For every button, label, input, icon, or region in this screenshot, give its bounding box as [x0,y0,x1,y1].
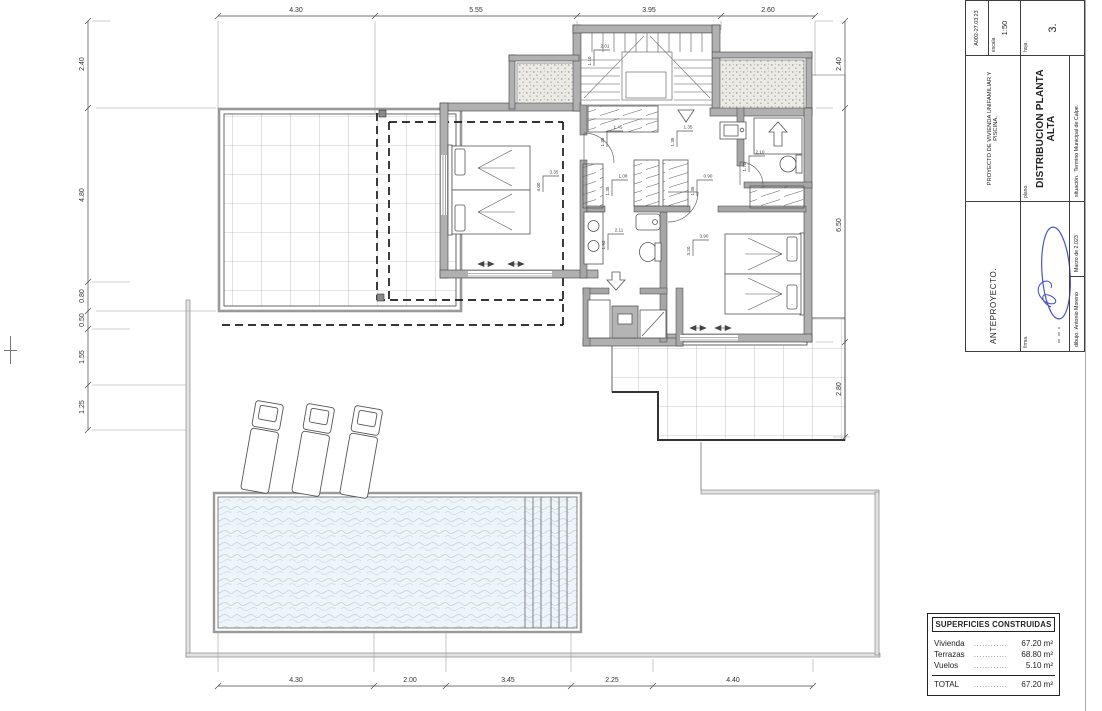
sun-lounger [292,403,335,496]
project-name: PROYECTO DE VIVIENDA UNIFAMILIAR Y PISCI… [966,55,1020,201]
project-type-label: ANTEPROYECTO. [966,201,1020,351]
location-value: Termino Municipal de Calpe. [1074,105,1080,172]
sun-lounger [241,400,284,493]
toilet-tank [796,155,802,173]
author-cell: dibujo. Antonio Moreno [1070,277,1084,351]
svg-text:2.25: 2.25 [605,677,619,684]
title-block: ANTEPROYECTO. PROYECTO DE VIVIENDA UNIFA… [965,0,1085,352]
room-dimension-label: 0.90 1.35 [690,174,713,197]
svg-text:2.60: 2.60 [761,7,775,14]
author-label: dibujo. [1074,331,1080,347]
svg-text:1.70: 1.70 [742,162,747,171]
sun-loungers [241,400,383,498]
svg-text:4.40: 4.40 [726,677,740,684]
svg-text:3.90: 3.90 [700,234,709,239]
plan-title-cell: plano. DISTRIBUCION PLANTA ALTA situació… [1021,55,1084,201]
svg-text:6.50: 6.50 [836,218,843,232]
svg-text:1.35: 1.35 [684,125,693,130]
landing-closets [588,300,666,338]
table-row: Vivienda ............ 67.20 m² [934,639,1053,648]
bed-right [725,233,804,315]
pillow [787,285,797,309]
areas-table: SUPERFICIES CONSTRUIDAS Vivienda .......… [927,613,1060,696]
floor-plan-canvas: 4.30 5.55 3.95 2.60 4.30 2.00 3.45 2.25 … [0,0,1102,711]
svg-text:1.08: 1.08 [619,174,628,179]
location-cell: situación. Termino Municipal de Calpe. [1069,56,1084,201]
location-label: situación. [1074,175,1080,197]
svg-text:0.80: 0.80 [79,289,86,303]
svg-text:2.10: 2.10 [756,150,765,155]
svg-text:1.35: 1.35 [600,137,605,146]
table-total-row: TOTAL ............ 67.20 m² [932,675,1055,689]
svg-text:4.00: 4.00 [536,182,541,191]
drawing-sheet: 4.30 5.55 3.95 2.60 4.30 2.00 3.45 2.25 … [0,0,1102,711]
svg-text:2.40: 2.40 [79,57,86,71]
hall-wardrobe [588,106,658,132]
svg-text:1.45: 1.45 [614,125,623,130]
svg-text:1.35: 1.35 [605,186,610,195]
page-margin-mark [4,350,17,351]
svg-text:1.35: 1.35 [670,137,675,146]
pillow [455,205,465,231]
pillow [787,237,797,261]
table-row: Vuelos ............ 5.10 m² [934,661,1053,670]
sheet-number-cell: hoja. 3. [1021,1,1084,55]
svg-text:1.10: 1.10 [587,56,592,65]
room-dimension-label: 1.35 1.35 [670,125,693,148]
svg-text:3.20: 3.20 [686,246,691,255]
svg-text:0.90: 0.90 [704,174,713,179]
room-dimension-label: 1.08 1.35 [605,174,628,197]
svg-text:2.11: 2.11 [615,228,624,233]
svg-text:4.30: 4.30 [289,677,303,684]
date-value: Marzo de 2.023 [1074,235,1080,272]
sink-bowl [588,241,599,252]
scale-value: 1:50 [1000,21,1009,36]
svg-text:0.50: 0.50 [79,313,86,327]
svg-text:1.93: 1.93 [601,240,606,249]
sun-lounger [340,405,383,498]
bathroom-right [720,118,802,173]
pillow [455,149,465,175]
bathroom-center [584,212,661,264]
svg-text:3.35: 3.35 [550,170,559,175]
plan-label: plano. [1023,184,1029,198]
page-border-right [1085,0,1086,711]
toilet-bowl [780,156,796,172]
headboard [448,145,452,235]
svg-text:2.40: 2.40 [836,57,843,71]
room-dimension-label: 2.11 1.93 [601,228,624,251]
svg-text:3.95: 3.95 [642,7,656,14]
svg-text:1.35: 1.35 [690,186,695,195]
date-cell: Marzo de 2.023 [1070,202,1084,277]
corridor-down-arrow [607,272,625,290]
svg-text:1.25: 1.25 [79,400,86,414]
svg-text:1.55: 1.55 [79,350,86,364]
bed-left [448,145,530,235]
stair-direction-arrow [678,110,694,122]
toilet-bowl [640,243,657,262]
sink-bowl [588,221,599,232]
svg-text:5.55: 5.55 [469,7,483,14]
upper-left-terrace [219,109,461,311]
author-value: Antonio Moreno [1074,292,1080,329]
room-dimension-label: 2.10 1.70 [742,150,765,173]
signature-cell: firma. dibujo. Antonio Moreno Marzo de 2… [1021,201,1084,351]
sheet-label: hoja. [1023,41,1029,52]
table-row: Terrazas ............ 68.80 m² [934,650,1053,659]
areas-table-title: SUPERFICIES CONSTRUIDAS [932,617,1055,632]
plan-title: DISTRIBUCION PLANTA ALTA [1035,56,1057,201]
svg-text:2.80: 2.80 [836,382,843,396]
scale-label: escala [991,38,997,52]
sheet-number: 3. [1047,23,1059,32]
svg-text:2.01: 2.01 [601,44,610,49]
drawing-reference: A002-27.03.23 [966,1,989,55]
toilet-tank [655,243,661,261]
svg-text:3.45: 3.45 [501,677,515,684]
scale-cell: escala 1:50 [989,1,1020,55]
vanity [584,212,603,264]
room-dimension-label: 3.35 4.00 [536,170,559,193]
svg-text:4.80: 4.80 [79,188,86,202]
swimming-pool [214,493,581,632]
room-dimension-label: 3.90 3.20 [686,234,709,257]
svg-text:4.30: 4.30 [289,7,303,14]
svg-text:2.00: 2.00 [403,677,417,684]
